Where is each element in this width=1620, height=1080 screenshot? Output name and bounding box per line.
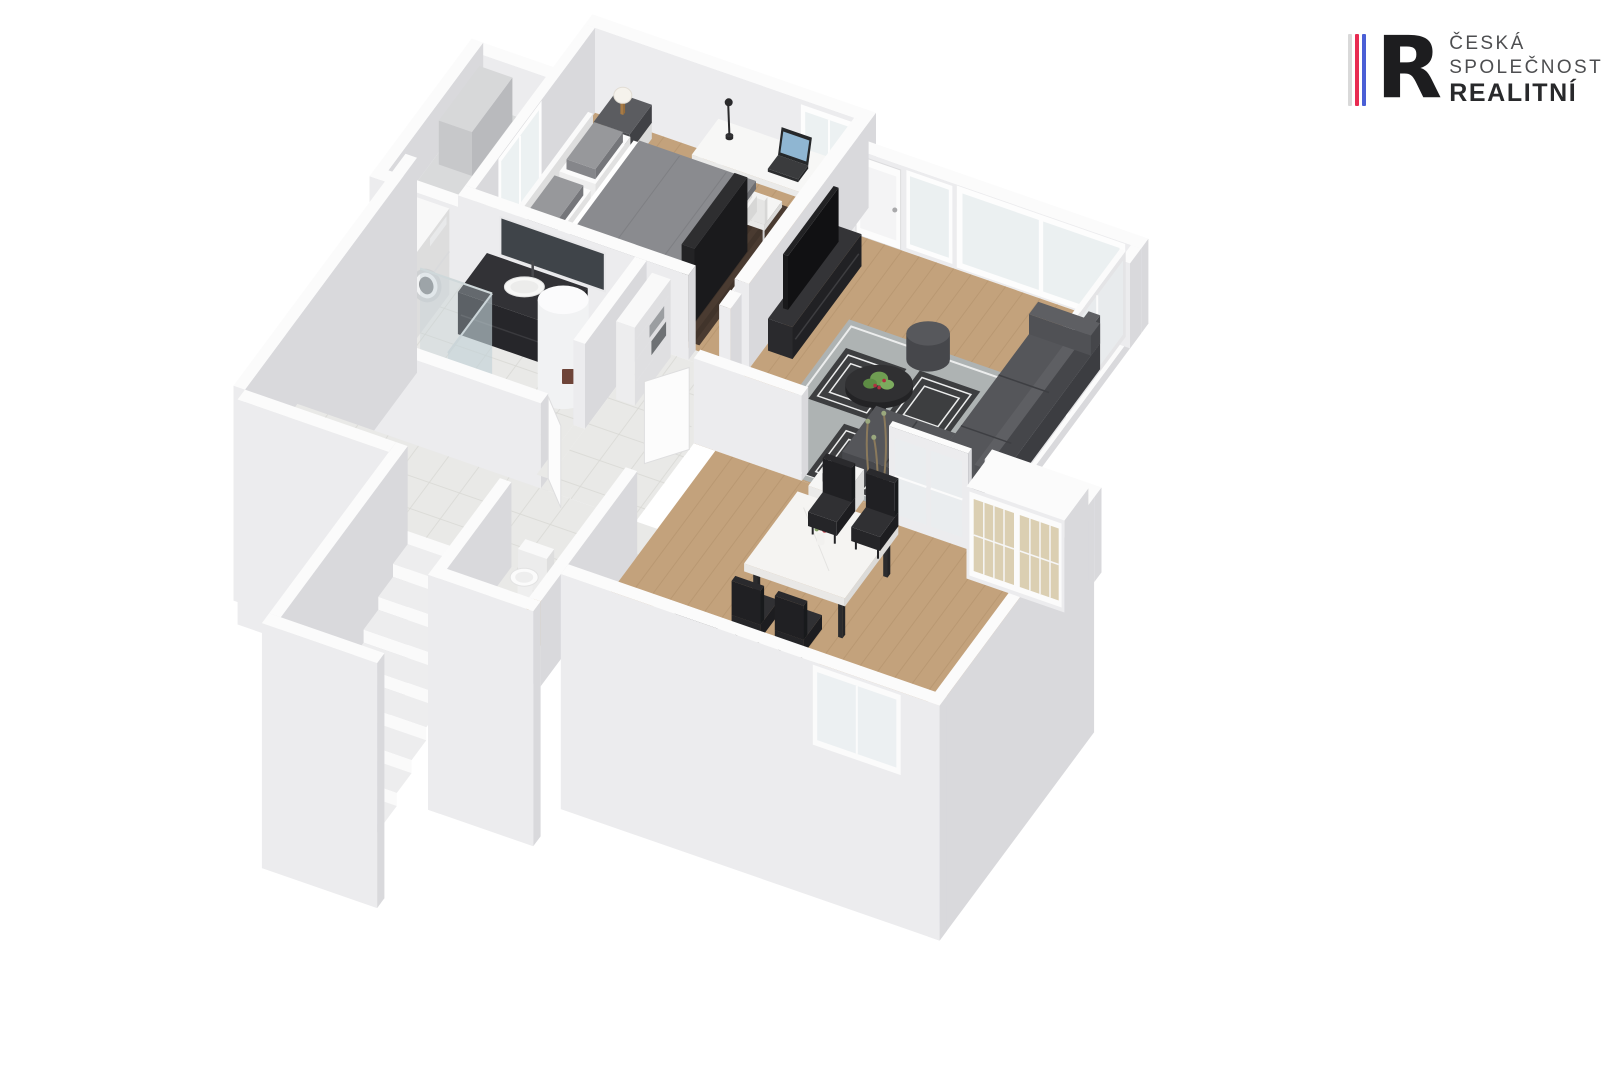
brand-stripes — [1348, 34, 1366, 106]
brand-line-1: ČESKÁ — [1449, 33, 1603, 54]
brand-wordmark: ČESKÁ SPOLEČNOST REALITNÍ — [1449, 33, 1603, 107]
brand-line-2: SPOLEČNOST — [1449, 57, 1603, 78]
floorplan-3d-render — [0, 0, 1620, 1080]
room-bedroom — [234, 24, 1142, 940]
brand-stripe-red — [1355, 34, 1359, 106]
hall-window — [906, 170, 952, 264]
brand-stripe-gray — [1348, 34, 1352, 106]
pouf — [906, 321, 950, 371]
brand-stripe-blue — [1362, 34, 1366, 106]
brand-monogram: R — [1376, 30, 1439, 106]
page: R ČESKÁ SPOLEČNOST REALITNÍ — [0, 0, 1620, 1080]
brand-logo: R ČESKÁ SPOLEČNOST REALITNÍ — [1348, 30, 1603, 107]
brand-line-3: REALITNÍ — [1449, 80, 1603, 107]
door-living-open — [644, 368, 689, 464]
floorplan-scene — [234, 14, 1149, 940]
